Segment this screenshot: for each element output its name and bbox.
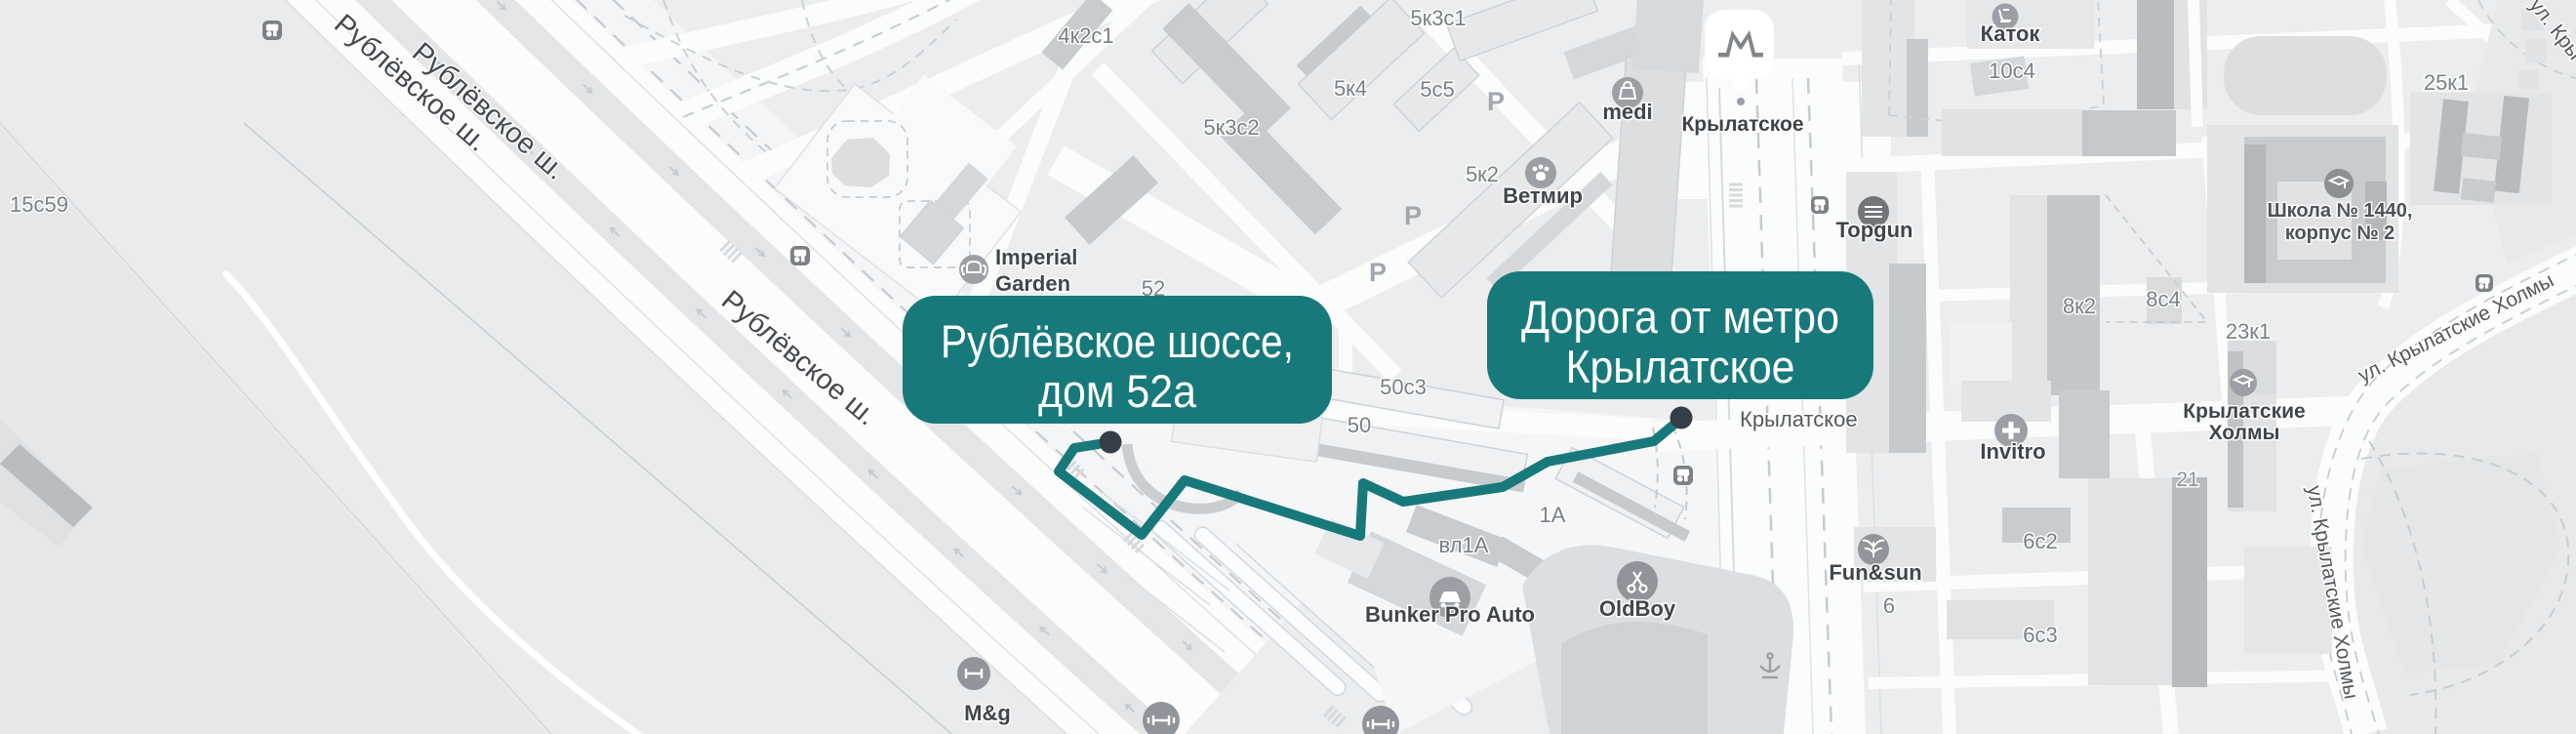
svg-text:5к3с1: 5к3с1 <box>1410 6 1466 30</box>
svg-text:6с3: 6с3 <box>2023 623 2057 647</box>
svg-text:OldBoy: OldBoy <box>1599 596 1676 621</box>
svg-text:Ветмир: Ветмир <box>1503 183 1583 208</box>
svg-text:Каток: Каток <box>1981 21 2041 46</box>
svg-text:5к4: 5к4 <box>1334 76 1367 101</box>
svg-text:10с4: 10с4 <box>1989 59 2035 83</box>
svg-text:6с2: 6с2 <box>2023 529 2057 553</box>
svg-text:8к2: 8к2 <box>2063 294 2096 318</box>
svg-text:5к2: 5к2 <box>1466 162 1499 186</box>
svg-text:Крылатское: Крылатское <box>1740 407 1858 431</box>
svg-text:5с5: 5с5 <box>1420 77 1454 102</box>
svg-text:P: P <box>1404 201 1422 230</box>
svg-text:Крылатское: Крылатское <box>1566 341 1795 392</box>
svg-text:6: 6 <box>1883 593 1895 618</box>
svg-text:Fun&sun: Fun&sun <box>1829 560 1921 585</box>
svg-text:5к3с2: 5к3с2 <box>1203 115 1259 140</box>
svg-text:23к1: 23к1 <box>2226 319 2271 344</box>
svg-text:Дорога от метро: Дорога от метро <box>1521 291 1839 343</box>
svg-text:21: 21 <box>2176 469 2198 491</box>
svg-text:25к1: 25к1 <box>2424 70 2469 95</box>
svg-text:P: P <box>1369 258 1387 287</box>
svg-text:корпус № 2: корпус № 2 <box>2285 223 2395 244</box>
svg-text:15с59: 15с59 <box>10 192 68 217</box>
svg-text:Garden: Garden <box>995 271 1070 296</box>
svg-text:Рублёвское шоссе,: Рублёвское шоссе, <box>941 315 1294 367</box>
svg-text:вл1А: вл1А <box>1439 533 1489 557</box>
svg-text:M&g: M&g <box>964 701 1011 725</box>
svg-text:Bunker Pro Auto: Bunker Pro Auto <box>1365 602 1535 627</box>
svg-text:50с3: 50с3 <box>1380 375 1427 399</box>
svg-text:Крылатское: Крылатское <box>1681 113 1803 136</box>
svg-text:Крылатские: Крылатские <box>2183 400 2305 423</box>
svg-text:50: 50 <box>1348 413 1371 437</box>
svg-text:medi: medi <box>1602 100 1652 124</box>
svg-text:P: P <box>1487 87 1505 116</box>
svg-text:Topgun: Topgun <box>1836 218 1913 242</box>
svg-text:Холмы: Холмы <box>2209 422 2280 444</box>
svg-text:Imperial: Imperial <box>995 245 1077 269</box>
svg-text:4к2с1: 4к2с1 <box>1058 23 1113 48</box>
svg-text:дом 52а: дом 52а <box>1038 365 1197 417</box>
svg-text:Школа № 1440,: Школа № 1440, <box>2268 200 2413 222</box>
svg-text:Invitro: Invitro <box>1980 439 2045 464</box>
svg-text:8с4: 8с4 <box>2146 287 2180 311</box>
svg-text:1А: 1А <box>1540 503 1566 527</box>
